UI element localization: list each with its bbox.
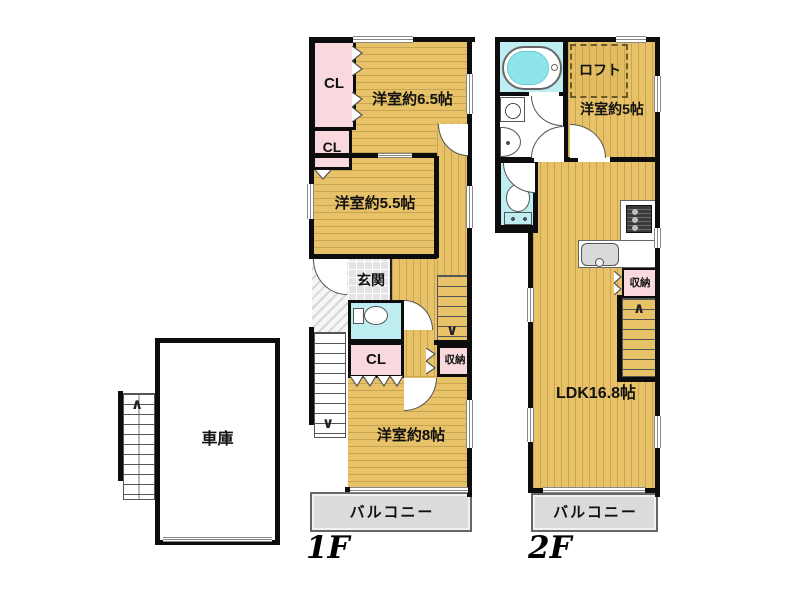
folding-door-icon <box>426 348 437 374</box>
room-label: 玄関 <box>350 272 392 288</box>
room-label: 収納 <box>438 352 472 366</box>
wall <box>528 230 533 493</box>
window-symbol <box>654 228 661 248</box>
bathtub-drain-icon <box>551 64 558 71</box>
floor-label-2f: 2F <box>528 530 572 566</box>
window-symbol <box>654 416 661 448</box>
window-symbol <box>527 408 534 442</box>
room-label: CL <box>312 138 352 156</box>
folding-door-icon <box>377 376 403 388</box>
room-label: 洋室約5帖 <box>566 100 658 117</box>
folding-door-icon <box>352 46 364 76</box>
window-symbol <box>353 36 413 43</box>
room-label: 収納 <box>623 275 657 289</box>
toilet-bowl-icon <box>364 306 388 325</box>
garage-shutter <box>163 537 272 542</box>
floorplan-canvas: ∨ ∨ ∧ 洋室約6.5帖 洋室約5.5帖 CL CL 玄関 CL 収納 洋室約… <box>0 0 800 600</box>
room-label: 車庫 <box>155 425 280 449</box>
stairs-down-arrow-icon: ∨ <box>322 416 334 431</box>
sink-drain-icon <box>595 258 604 267</box>
stairs-up-arrow-icon: ∧ <box>131 397 143 412</box>
wall <box>495 37 500 233</box>
stove-icon <box>626 205 652 233</box>
room-label: バルコニー <box>312 502 472 520</box>
room-label: 洋室約8帖 <box>350 424 472 444</box>
folding-door-icon <box>350 376 376 388</box>
stairs-up-arrow-icon: ∧ <box>633 301 645 316</box>
window-symbol <box>543 487 645 493</box>
room-label: LDK16.8帖 <box>535 380 657 402</box>
window-symbol <box>350 487 468 493</box>
folding-door-icon <box>614 271 623 295</box>
room-label: バルコニー <box>533 502 658 520</box>
room-label: 洋室約6.5帖 <box>355 88 470 108</box>
bathtub-water <box>507 51 549 85</box>
window-symbol <box>307 184 314 219</box>
washing-machine-icon <box>500 97 525 122</box>
wall <box>434 340 472 345</box>
toilet-icon <box>353 308 364 324</box>
window-symbol <box>466 186 473 228</box>
room-label: CL <box>312 74 356 92</box>
room-label: 洋室約5.5帖 <box>315 192 435 212</box>
toilet-tank-icon <box>504 212 532 225</box>
stairs-down-arrow-icon: ∨ <box>446 323 458 338</box>
floor-label-1f: 1F <box>306 530 350 566</box>
room-label: CL <box>350 350 402 368</box>
room-label: ロフト <box>572 62 628 78</box>
folding-door-icon <box>315 170 331 181</box>
window-symbol <box>616 36 646 43</box>
room-divider-opening <box>378 153 412 158</box>
window-symbol <box>527 288 534 322</box>
